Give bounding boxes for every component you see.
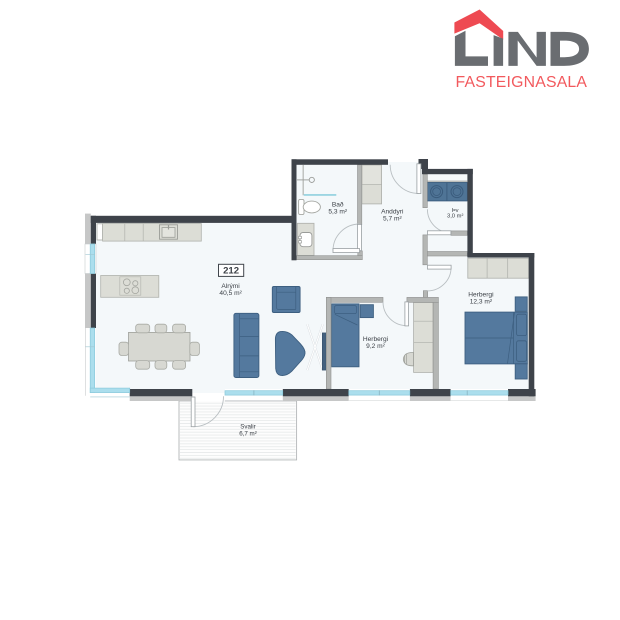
svg-text:Bað: Bað: [332, 201, 344, 209]
svg-text:Herbergi: Herbergi: [468, 292, 494, 299]
svg-text:Alrými: Alrými: [221, 283, 240, 290]
svg-text:Anddyri: Anddyri: [381, 209, 404, 216]
svg-text:FASTEIGNASALA: FASTEIGNASALA: [456, 74, 588, 91]
svg-text:5,3 m²: 5,3 m²: [328, 209, 347, 216]
svg-text:5,7 m²: 5,7 m²: [383, 216, 402, 223]
svg-text:40,5 m²: 40,5 m²: [219, 290, 242, 297]
svg-text:3,0 m²: 3,0 m²: [447, 214, 463, 220]
svg-text:212: 212: [223, 266, 239, 277]
svg-text:6,7 m²: 6,7 m²: [239, 431, 257, 438]
svg-text:Herbergi: Herbergi: [363, 336, 389, 343]
svg-text:12,3 m²: 12,3 m²: [470, 299, 493, 306]
svg-text:9,2 m²: 9,2 m²: [366, 343, 385, 350]
